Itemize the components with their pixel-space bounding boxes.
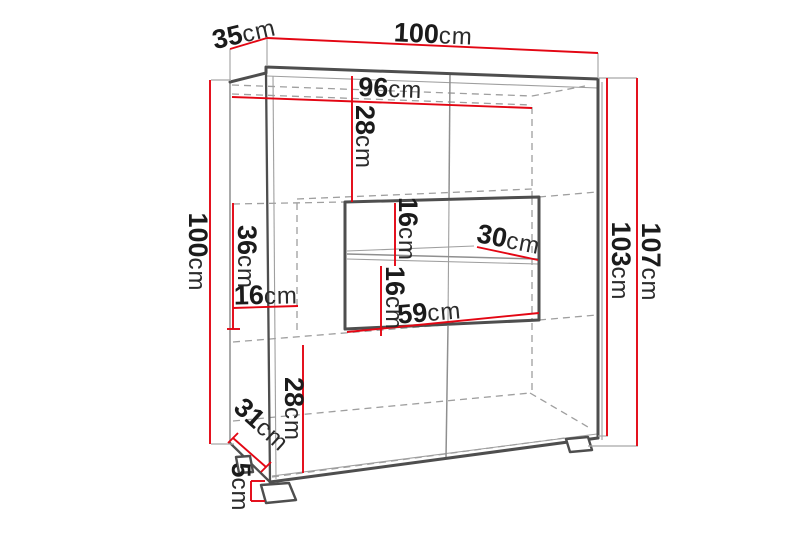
diagram-canvas: 35cm 100cm 96cm 28cm 100cm 36cm 16cm 16c… <box>0 0 800 533</box>
dim-label-top-section-height: 28cm <box>350 105 380 169</box>
dim-label-total-height: 107cm <box>636 222 666 301</box>
lower-divider <box>446 326 448 458</box>
bottom-front-overline <box>272 434 597 476</box>
dim-label-body-height: 103cm <box>606 221 636 300</box>
dim-label-niche-width: 59cm <box>396 294 462 329</box>
hidden-edge-niche-top-left <box>233 202 345 204</box>
dim-label-inner-width: 96cm <box>358 72 423 104</box>
foot-front-right <box>566 437 592 452</box>
dim-label-top-width: 100cm <box>393 17 473 50</box>
hidden-edge-niche-bottom-right <box>539 315 597 320</box>
dim-label-left-height: 100cm <box>183 212 213 291</box>
hidden-edge-niche-top-right <box>539 192 597 197</box>
furniture-dimension-diagram: 35cm 100cm 96cm 28cm 100cm 36cm 16cm 16c… <box>0 0 800 533</box>
dim-label-foot-height: 5cm <box>226 462 256 511</box>
upper-divider <box>449 74 450 200</box>
dim-label-left-inner-depth: 16cm <box>234 279 299 310</box>
foot-front-left <box>261 483 296 503</box>
dim-label-top-depth: 35cm <box>209 11 278 55</box>
dim-label-niche-upper-height: 16cm <box>393 197 423 261</box>
hidden-edge-floor-right <box>530 393 588 427</box>
bottom-front-edge <box>270 438 598 482</box>
hidden-edge-floor-back <box>233 393 530 421</box>
